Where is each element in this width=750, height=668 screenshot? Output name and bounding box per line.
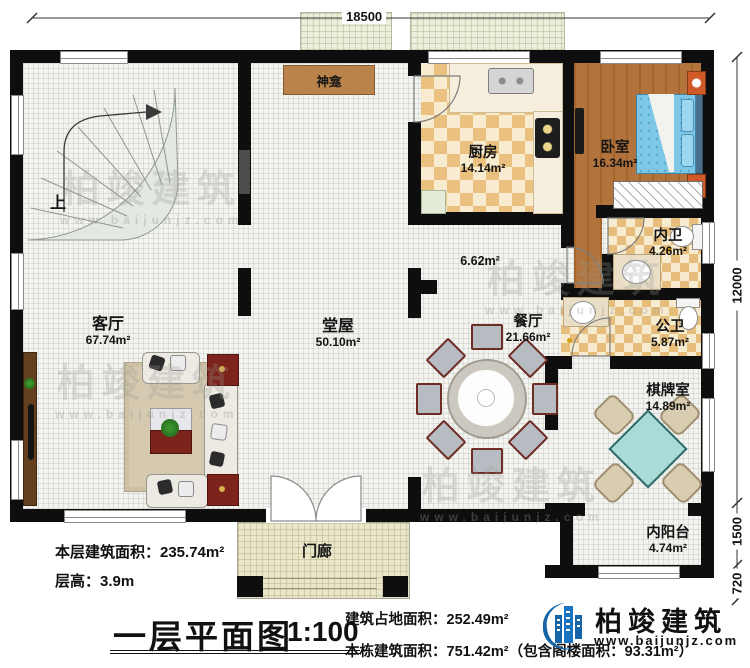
room-label-chess: 棋牌室 14.89m² <box>608 383 728 413</box>
room-label-ensuite: 内卫 4.26m² <box>608 228 728 258</box>
room-label-kitchen: 厨房 14.14m² <box>423 145 543 175</box>
land-area-text: 建筑占地面积：252.49m² <box>345 608 509 629</box>
dim-right-step: 720 <box>730 569 745 599</box>
floor-height-text: 层高：3.9m <box>55 570 134 591</box>
room-label-bedroom: 卧室 16.34m² <box>555 140 675 170</box>
room-label-dining: 餐厅 21.66m² <box>468 314 588 344</box>
corridor-area-label: 6.62m² <box>420 254 540 268</box>
dim-top-width: 18500 <box>342 9 386 24</box>
room-label-hall: 堂屋 50.10m² <box>278 318 398 350</box>
dim-right-balcony: 1500 <box>730 514 745 550</box>
floor-area-text: 本层建筑面积：235.74m² <box>55 541 224 562</box>
stairs-up-label: 上 <box>40 195 76 213</box>
room-label-porch: 门廊 <box>257 543 377 560</box>
dim-right-height: 12000 <box>730 261 745 311</box>
brand-website: www.baijunjz.com <box>594 633 738 648</box>
room-label-living: 客厅 67.74m² <box>48 316 168 348</box>
room-label-publicbath: 公卫 5.87m² <box>610 319 730 349</box>
brand-logo-icon <box>543 598 591 652</box>
title-underline <box>110 650 360 659</box>
floor-plan-canvas: 神龛 <box>0 0 750 668</box>
room-label-balcony: 内阳台 4.74m² <box>608 525 728 555</box>
